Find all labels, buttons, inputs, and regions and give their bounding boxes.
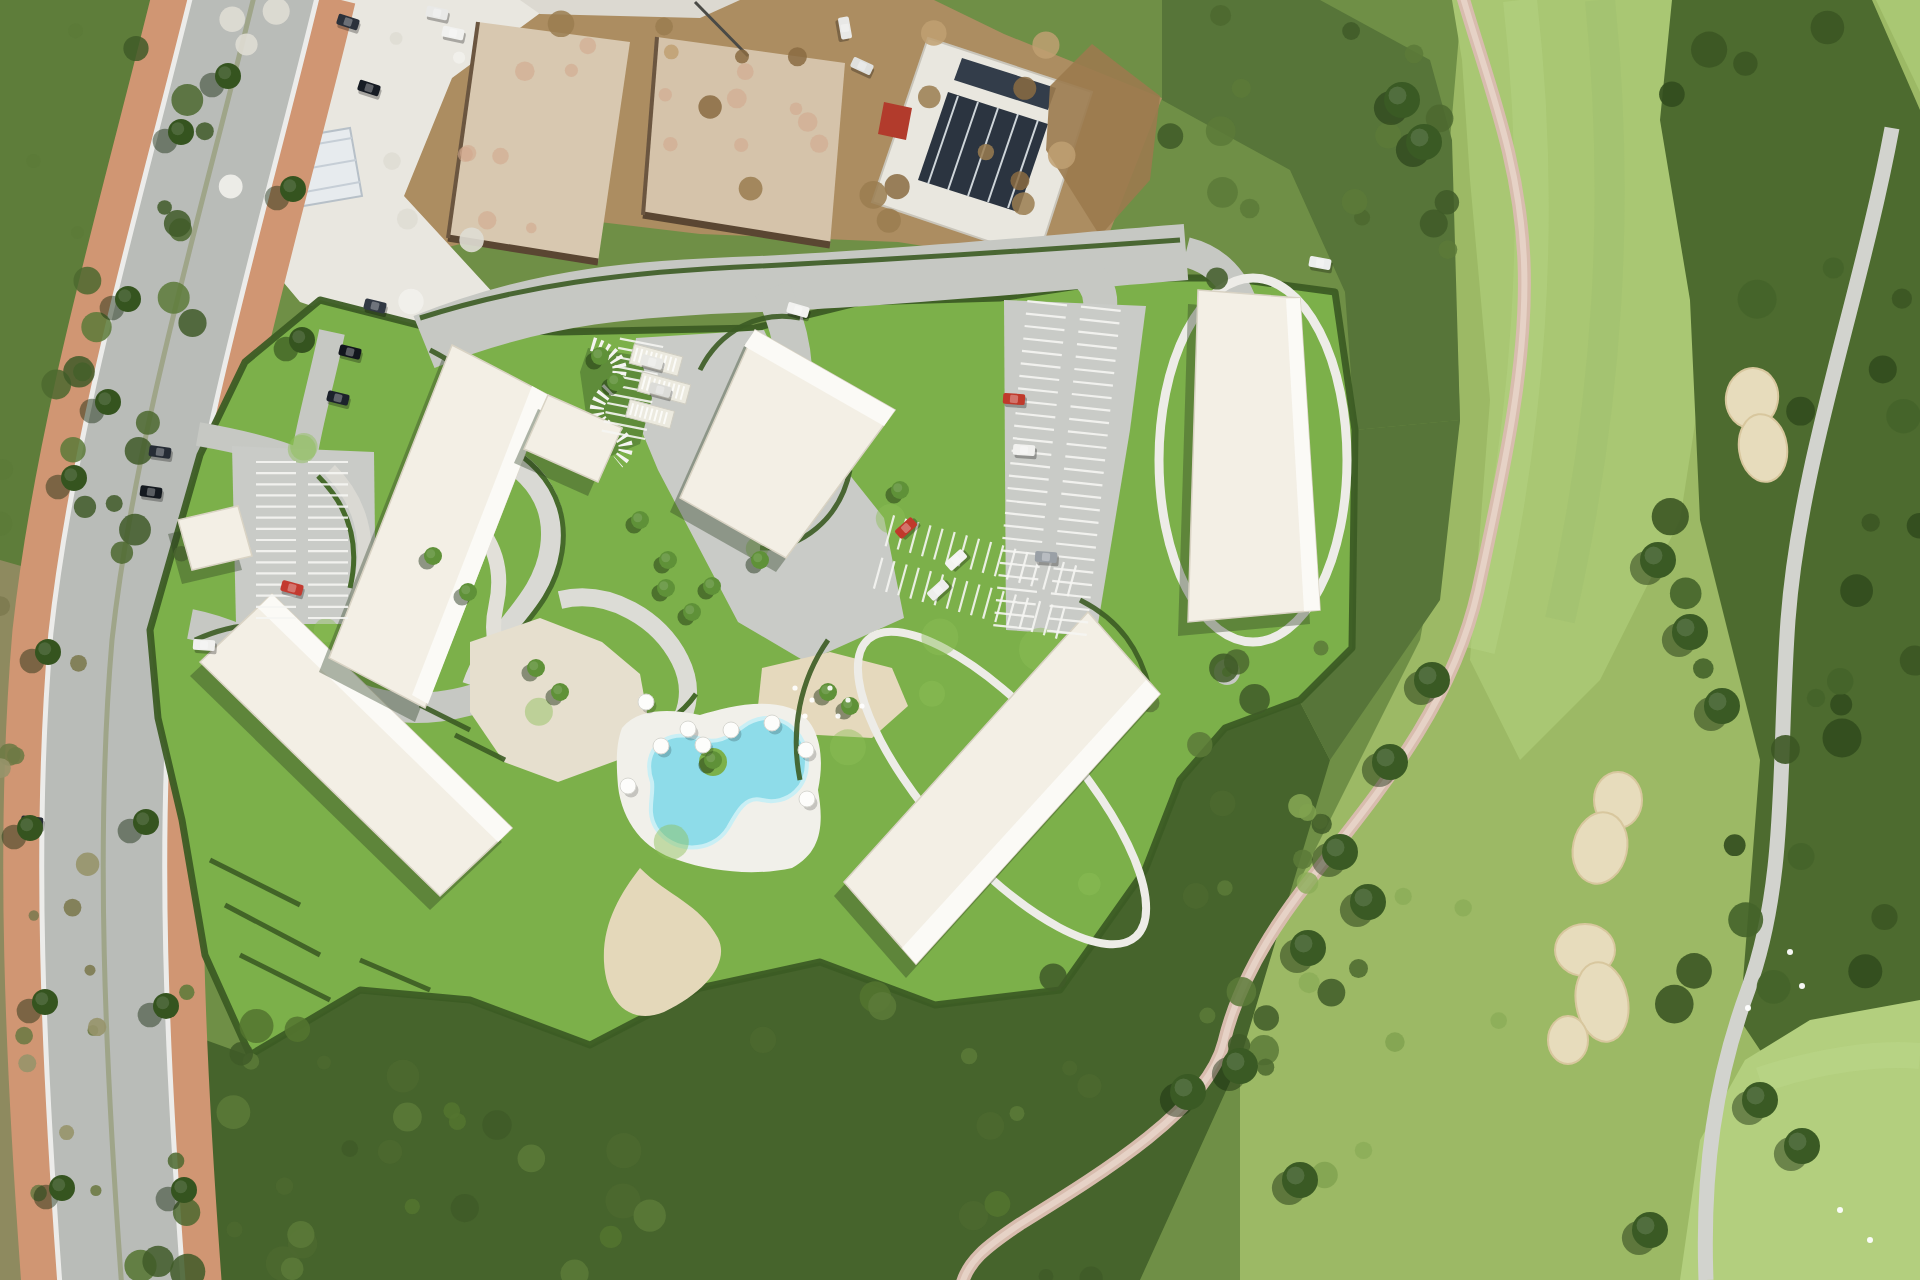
tree-highlight (20, 818, 33, 831)
vegetation-blob (1786, 397, 1815, 426)
parasol (680, 721, 696, 737)
vegetation-blob (240, 1009, 274, 1043)
tree-highlight (1355, 889, 1373, 907)
aerial-view-svg (0, 0, 1920, 1280)
vegetation-blob (1342, 189, 1368, 215)
vegetation-blob (518, 1145, 546, 1173)
sand-bunker (1548, 1016, 1588, 1064)
vegetation-blob (1227, 977, 1257, 1007)
vegetation-blob (285, 1016, 310, 1041)
vegetation-blob (85, 965, 96, 976)
vegetation-blob (398, 289, 423, 314)
tree-highlight (118, 289, 131, 302)
vegetation-blob (106, 495, 123, 512)
vegetation-blob (393, 1103, 422, 1132)
tree-highlight (705, 579, 714, 588)
vegetation-blob (383, 152, 401, 170)
vegetation-blob (111, 542, 133, 564)
parasol (764, 715, 780, 731)
vegetation-blob (1691, 31, 1727, 67)
vegetation-blob (1490, 1012, 1507, 1029)
tree-highlight (218, 66, 231, 79)
vegetation-blob (1207, 177, 1238, 208)
vegetation-blob (737, 63, 754, 80)
vegetation-blob (1385, 1032, 1405, 1052)
vegetation-blob (978, 144, 994, 160)
parasol (653, 738, 669, 754)
tree-highlight (1411, 129, 1429, 147)
vegetation-blob (961, 1048, 977, 1064)
vegetation-blob (1757, 970, 1791, 1004)
vegetation-blob (788, 47, 807, 66)
vegetation-blob (136, 411, 160, 435)
vegetation-blob (1299, 804, 1317, 822)
vegetation-blob (342, 1140, 359, 1157)
vegetation-blob (1670, 578, 1702, 610)
vegetation-blob (1040, 964, 1067, 991)
tree-highlight (633, 513, 642, 522)
vegetation-blob (1299, 972, 1320, 993)
vegetation-blob (860, 181, 888, 209)
vegetation-blob (227, 1222, 243, 1238)
golf-speck (1745, 1005, 1751, 1011)
tree-highlight (292, 330, 305, 343)
vegetation-blob (179, 985, 194, 1000)
vegetation-blob (460, 145, 476, 161)
vegetation-blob (1293, 850, 1313, 870)
vegetation-blob (918, 86, 941, 109)
tree-highlight (98, 392, 111, 405)
vegetation-blob (405, 1199, 420, 1214)
vegetation-blob (1240, 199, 1260, 219)
vegetation-blob (123, 36, 148, 61)
tree-highlight (1287, 1167, 1305, 1185)
parasol (798, 742, 814, 758)
tree-highlight (1377, 749, 1395, 767)
car-roof (432, 8, 441, 17)
parasol (695, 737, 711, 753)
vegetation-blob (168, 1153, 185, 1170)
tree-highlight (52, 1178, 65, 1191)
vegetation-blob (1206, 116, 1236, 146)
vegetation-blob (88, 1018, 106, 1036)
vegetation-blob (1032, 31, 1059, 58)
vegetation-blob (1655, 985, 1694, 1024)
tree-highlight (283, 179, 296, 192)
play-equipment (802, 713, 807, 718)
vegetation-blob (125, 437, 153, 465)
vegetation-blob (659, 88, 672, 101)
vegetation-blob (1862, 513, 1880, 531)
vegetation-blob (1206, 268, 1228, 290)
play-equipment (827, 685, 832, 690)
vegetation-blob (921, 619, 958, 656)
tree-highlight (685, 605, 694, 614)
vegetation-blob (219, 6, 245, 32)
vegetation-blob (885, 174, 910, 199)
vegetation-blob (1455, 899, 1472, 916)
vegetation-blob (830, 729, 866, 765)
vegetation-blob (606, 1133, 641, 1168)
tree-highlight (1295, 935, 1313, 953)
vegetation-blob (579, 37, 596, 54)
vegetation-blob (63, 356, 95, 388)
vegetation-blob (810, 135, 828, 153)
vegetation-blob (158, 282, 190, 314)
vegetation-blob (548, 10, 575, 37)
vegetation-blob (655, 18, 673, 36)
vegetation-blob (664, 45, 679, 60)
tree-highlight (1175, 1079, 1193, 1097)
car-roof (1042, 553, 1051, 562)
vegetation-blob (1823, 719, 1862, 758)
vegetation-blob (478, 211, 496, 229)
vegetation-blob (1342, 22, 1360, 40)
vegetation-blob (663, 137, 677, 151)
tree-highlight (659, 581, 668, 590)
vegetation-blob (1693, 658, 1714, 679)
vegetation-blob (976, 1112, 1004, 1140)
parasol (723, 722, 739, 738)
vegetation-blob (27, 154, 41, 168)
parasol (620, 778, 636, 794)
vegetation-blob (735, 50, 749, 64)
vegetation-blob (877, 209, 901, 233)
vegetation-blob (1827, 668, 1853, 694)
vegetation-blob (1355, 1142, 1372, 1159)
vegetation-blob (727, 89, 747, 109)
vegetation-blob (1811, 11, 1845, 45)
tree-highlight (1637, 1217, 1655, 1235)
vegetation-blob (74, 496, 96, 518)
parasol (799, 791, 815, 807)
vegetation-blob (60, 437, 86, 463)
vegetation-blob (1886, 399, 1920, 433)
vegetation-blob (164, 210, 191, 237)
golf-speck (1837, 1207, 1843, 1213)
vegetation-blob (921, 20, 947, 46)
car-roof (200, 641, 209, 650)
vegetation-blob (15, 1027, 33, 1045)
tree-highlight (1389, 87, 1407, 105)
vegetation-blob (7, 747, 24, 764)
tree-highlight (35, 992, 48, 1005)
vegetation-blob (90, 1185, 101, 1196)
car-roof (155, 447, 164, 456)
vegetation-blob (451, 1194, 479, 1222)
vegetation-blob (1871, 904, 1897, 930)
vegetation-blob (1771, 735, 1800, 764)
vegetation-blob (750, 1027, 776, 1053)
golf-speck (1787, 949, 1793, 955)
vegetation-blob (1232, 79, 1251, 98)
vegetation-blob (1239, 684, 1270, 715)
vegetation-blob (1738, 280, 1777, 319)
shipping-container (878, 102, 912, 140)
vegetation-blob (1217, 880, 1233, 896)
vegetation-blob (378, 1140, 402, 1164)
vegetation-blob (515, 61, 535, 81)
vegetation-blob (290, 433, 317, 460)
vegetation-blob (698, 95, 721, 118)
vegetation-blob (1676, 953, 1712, 989)
vegetation-blob (1788, 843, 1815, 870)
vegetation-blob (1314, 641, 1329, 656)
car-roof (448, 28, 457, 37)
vegetation-blob (1848, 954, 1882, 988)
tree-highlight (1419, 667, 1437, 685)
tree-highlight (461, 585, 470, 594)
vegetation-blob (1062, 1061, 1077, 1076)
tree-highlight (1789, 1133, 1807, 1151)
vegetation-blob (1439, 240, 1458, 259)
vegetation-blob (1395, 888, 1412, 905)
vegetation-blob (18, 1054, 36, 1072)
vegetation-blob (600, 1226, 622, 1248)
vegetation-blob (59, 1125, 74, 1140)
play-equipment (792, 685, 797, 690)
vegetation-blob (1892, 289, 1912, 309)
tree-highlight (174, 1180, 187, 1193)
vegetation-blob (1659, 82, 1685, 108)
tree-highlight (893, 483, 902, 492)
vegetation-blob (1078, 873, 1101, 896)
tree-highlight (1327, 839, 1345, 857)
vegetation-blob (71, 226, 84, 239)
vegetation-blob (1012, 192, 1035, 215)
vegetation-blob (1199, 1008, 1215, 1024)
tree-highlight (1645, 547, 1663, 565)
tree-highlight (1677, 619, 1695, 637)
vegetation-blob (1210, 791, 1236, 817)
vegetation-blob (64, 899, 82, 917)
golf-speck (1867, 1237, 1873, 1243)
vegetation-blob (287, 1221, 314, 1248)
vegetation-blob (1010, 171, 1029, 190)
vegetation-blob (739, 177, 763, 201)
vegetation-blob (654, 825, 689, 860)
vegetation-blob (868, 992, 896, 1020)
vegetation-blob (1318, 979, 1346, 1007)
vegetation-blob (230, 1042, 253, 1065)
tree-highlight (64, 468, 77, 481)
tree-highlight (661, 553, 670, 562)
vegetation-blob (317, 1056, 331, 1070)
car-roof (840, 23, 849, 32)
vegetation-blob (281, 1258, 304, 1280)
parasol (638, 694, 654, 710)
vegetation-blob (1183, 883, 1209, 909)
vegetation-blob (1652, 498, 1689, 535)
play-equipment (809, 697, 814, 702)
car-roof (1020, 446, 1029, 455)
vegetation-blob (1048, 142, 1076, 170)
car-roof (1315, 258, 1324, 267)
vegetation-blob (1830, 694, 1852, 716)
vegetation-blob (919, 681, 945, 707)
vegetation-blob (1257, 1059, 1274, 1076)
vegetation-blob (1869, 355, 1897, 383)
vegetation-blob (119, 514, 151, 546)
vegetation-blob (1405, 44, 1424, 63)
tree-highlight (1227, 1053, 1245, 1071)
vegetation-blob (1209, 653, 1238, 682)
vegetation-blob (1010, 1106, 1025, 1121)
vegetation-blob (217, 1095, 251, 1129)
aerial-photo-canvas (0, 0, 1920, 1280)
vegetation-blob (68, 24, 83, 39)
vegetation-blob (1349, 959, 1368, 978)
vegetation-blob (219, 175, 243, 199)
vegetation-blob (1187, 732, 1212, 757)
vegetation-blob (235, 33, 257, 55)
car-roof (146, 487, 155, 496)
tree-highlight (593, 349, 602, 358)
vegetation-blob (734, 138, 748, 152)
vegetation-blob (1728, 902, 1763, 937)
golf-speck (1799, 983, 1805, 989)
vegetation-blob (1013, 77, 1036, 100)
vegetation-blob (1840, 574, 1873, 607)
vegetation-blob (1157, 123, 1183, 149)
vegetation-blob (492, 148, 509, 165)
tree-highlight (609, 375, 618, 384)
vegetation-blob (443, 1102, 460, 1119)
vegetation-blob (1724, 834, 1746, 856)
tree-highlight (753, 553, 762, 562)
play-equipment (845, 697, 850, 702)
vegetation-blob (1807, 689, 1825, 707)
vegetation-blob (453, 52, 465, 64)
tree-highlight (156, 996, 169, 1009)
tree-highlight (136, 812, 149, 825)
vegetation-blob (798, 112, 818, 132)
vegetation-blob (390, 32, 403, 45)
car-roof (1010, 395, 1019, 404)
tree-highlight (171, 122, 184, 135)
tree-highlight (1709, 693, 1727, 711)
vegetation-blob (1210, 5, 1231, 26)
vegetation-blob (70, 655, 87, 672)
vegetation-blob (1253, 1005, 1279, 1031)
vegetation-blob (985, 1191, 1011, 1217)
vegetation-blob (76, 853, 99, 876)
vegetation-blob (1077, 1074, 1101, 1098)
vegetation-blob (29, 910, 39, 920)
play-equipment (859, 703, 864, 708)
vegetation-blob (171, 84, 203, 116)
vegetation-blob (276, 1177, 294, 1195)
vegetation-blob (387, 1060, 420, 1093)
tree-highlight (529, 661, 538, 670)
vegetation-blob (459, 228, 484, 253)
vegetation-blob (482, 1110, 511, 1139)
vegetation-blob (790, 103, 803, 116)
vegetation-blob (565, 64, 578, 77)
vegetation-blob (178, 309, 206, 337)
vegetation-blob (142, 1246, 173, 1277)
vegetation-blob (397, 209, 418, 230)
tree-highlight (38, 642, 51, 655)
play-equipment (835, 713, 840, 718)
vegetation-blob (526, 223, 537, 234)
tree-highlight (553, 685, 562, 694)
vegetation-blob (634, 1199, 666, 1231)
vegetation-blob (74, 267, 102, 295)
vegetation-blob (196, 122, 214, 140)
vegetation-blob (1297, 872, 1319, 894)
tree-highlight (1747, 1087, 1765, 1105)
vegetation-blob (959, 1201, 988, 1230)
vegetation-blob (1733, 51, 1757, 75)
foundation-slab (448, 22, 630, 262)
vegetation-blob (1435, 190, 1459, 214)
vegetation-blob (1823, 257, 1844, 278)
tree-highlight (426, 549, 435, 558)
